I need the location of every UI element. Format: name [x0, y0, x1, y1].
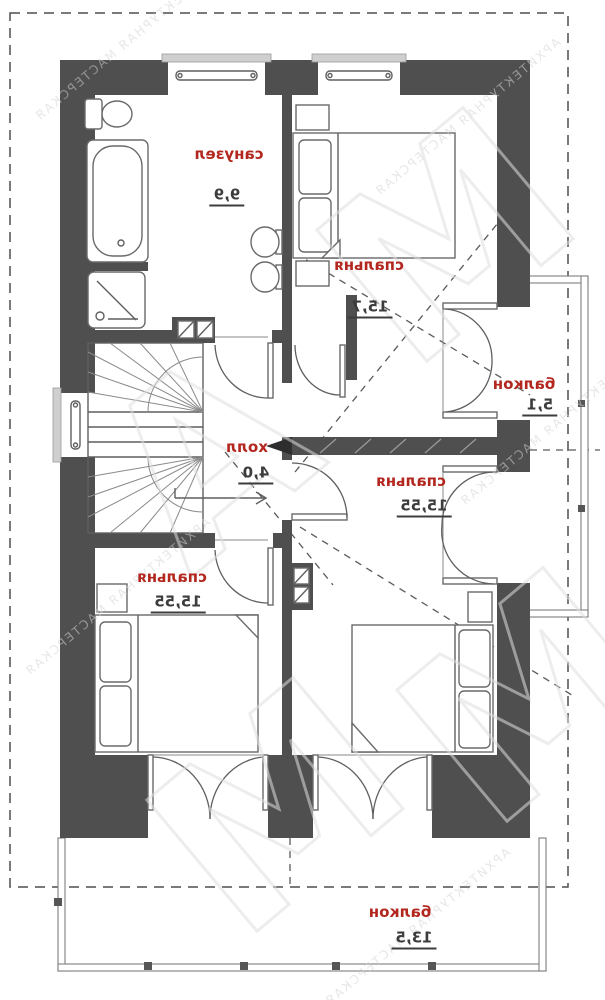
room-label-bedroom-top: спальня [334, 256, 404, 274]
floor-plan-drawing: М А М М АРХИТЕКТУРНАЯ МАСТЕРСКАЯ АРХИТЕК… [0, 0, 605, 1000]
floor-plan-canvas: М А М М АРХИТЕКТУРНАЯ МАСТЕРСКАЯ АРХИТЕК… [0, 0, 605, 1000]
room-label-hall: холл [226, 438, 268, 456]
room-area-bedroom-left: 15,55 [150, 593, 205, 614]
room-label-bathroom: санузел [194, 145, 263, 163]
room-area-balcony-bottom: 13,5 [391, 929, 436, 950]
room-label-bedroom-left: спальня [137, 568, 207, 586]
room-area-hall: 4,0 [239, 464, 274, 485]
room-area-bedroom-top: 15,7 [347, 298, 392, 319]
room-area-bedroom-right: 15,55 [396, 497, 451, 518]
svg-text:А: А [51, 295, 366, 621]
toilet-icon [85, 99, 132, 129]
room-area-bathroom: 9,9 [210, 186, 245, 207]
room-area-balcony-right: 5,1 [523, 396, 558, 417]
window-top-left [162, 54, 271, 95]
sinks-icon [251, 227, 282, 292]
room-label-balcony-bottom: балкон [369, 903, 431, 921]
room-label-bedroom-right: спальня [376, 472, 446, 490]
vent-shaft-block-bedroom [292, 563, 313, 610]
shower-icon [88, 272, 145, 328]
window-top-right [312, 54, 406, 95]
bathtub-icon [87, 140, 148, 262]
room-label-balcony-right: балкон [493, 375, 555, 393]
bedroom-top-door [295, 345, 345, 397]
